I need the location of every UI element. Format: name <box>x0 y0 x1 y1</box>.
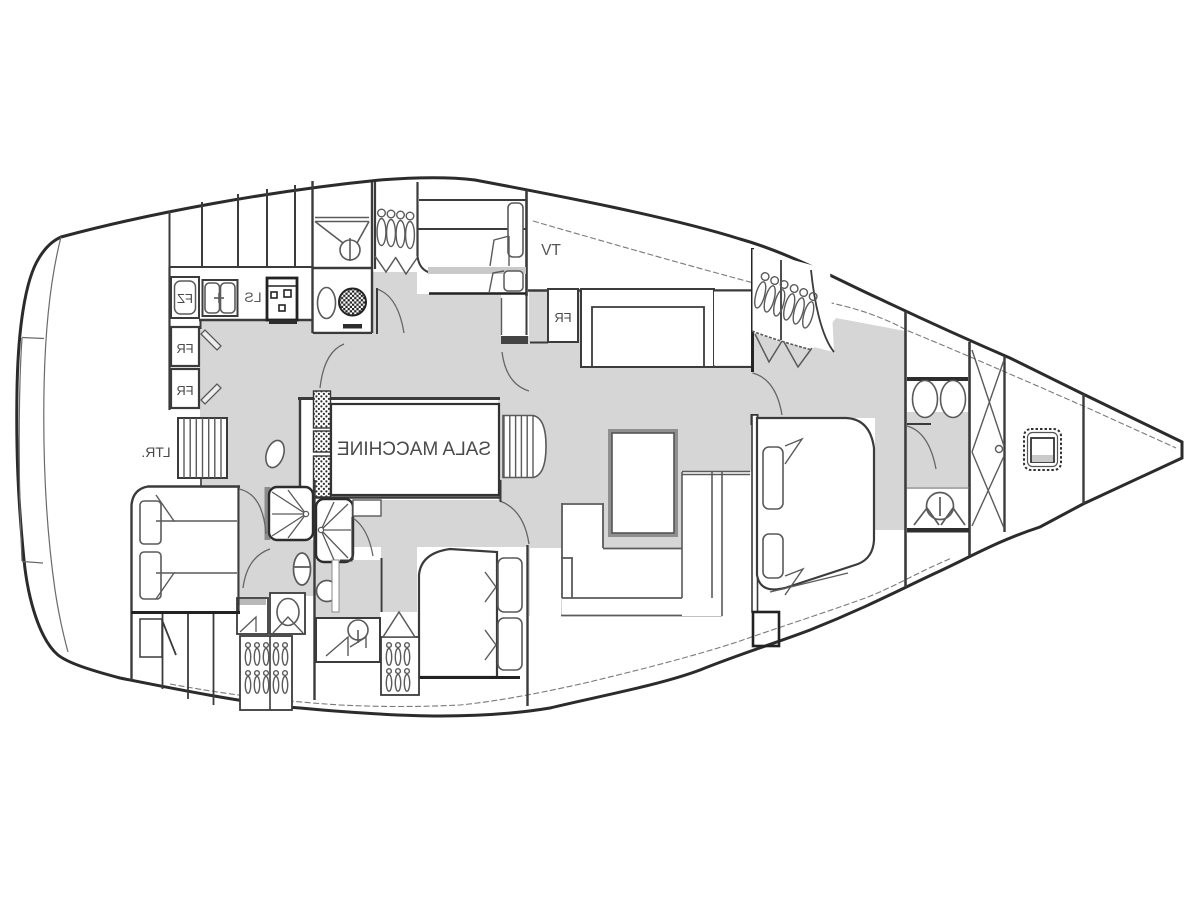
svg-text:FR: FR <box>554 310 571 325</box>
svg-text:FR: FR <box>176 383 193 398</box>
svg-text:LS: LS <box>244 289 261 305</box>
svg-text:FZ: FZ <box>177 291 193 306</box>
svg-text:LTR.: LTR. <box>141 444 170 460</box>
svg-text:FR: FR <box>176 341 193 356</box>
svg-text:TV: TV <box>540 242 560 259</box>
svg-text:SALA MACCHINE: SALA MACCHINE <box>337 439 491 460</box>
